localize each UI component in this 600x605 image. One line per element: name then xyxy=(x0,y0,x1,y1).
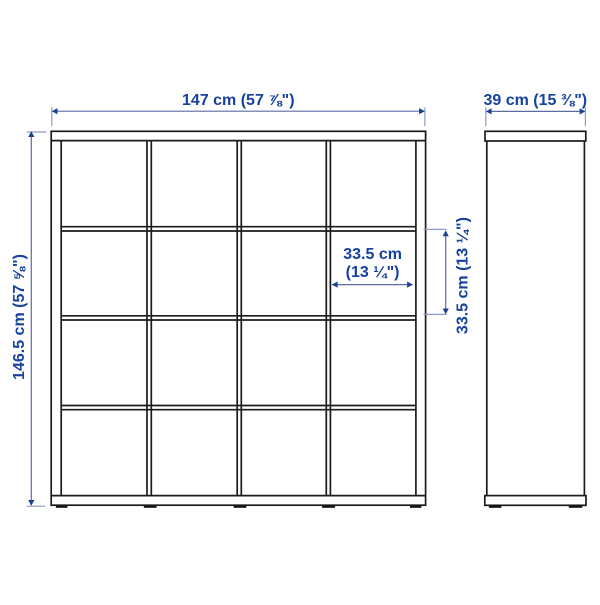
svg-text:146.5 cm (57 ⅝"): 146.5 cm (57 ⅝") xyxy=(11,254,28,380)
svg-text:33.5 cm: 33.5 cm xyxy=(343,246,402,263)
svg-text:147 cm (57 ⅞"): 147 cm (57 ⅞") xyxy=(182,92,295,109)
svg-text:(13 ¼"): (13 ¼") xyxy=(346,264,400,281)
svg-text:33.5 cm (13 ¼"): 33.5 cm (13 ¼") xyxy=(455,217,472,334)
svg-text:39 cm (15 ⅜"): 39 cm (15 ⅜") xyxy=(483,92,587,109)
